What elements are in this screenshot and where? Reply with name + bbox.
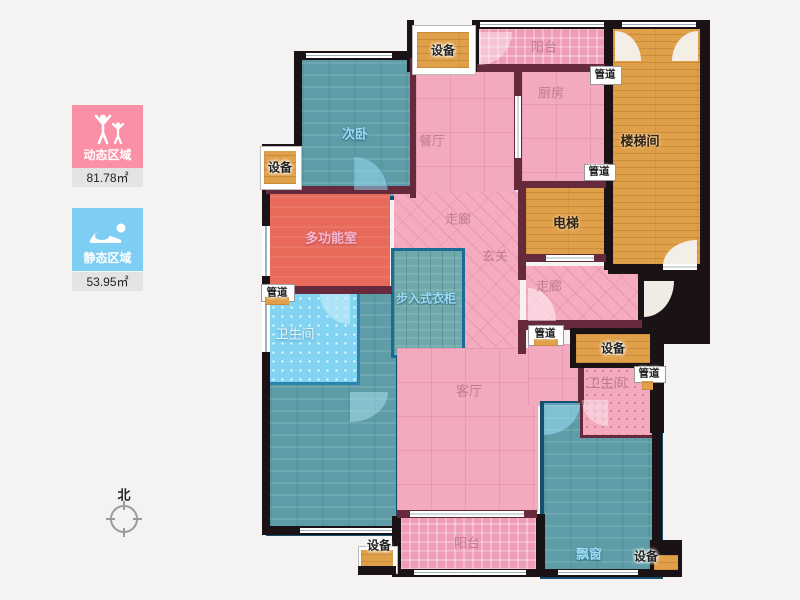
wall	[520, 181, 606, 188]
room-dining	[416, 64, 516, 194]
window	[558, 570, 638, 575]
window	[306, 53, 392, 58]
legend-static-label: 静态区域	[83, 249, 131, 266]
window	[262, 298, 270, 352]
pipe-box	[590, 66, 622, 85]
pipe-box-orange	[534, 339, 558, 346]
compass-icon	[104, 498, 144, 538]
pipe-box	[584, 164, 616, 181]
static-area-icon	[86, 219, 130, 249]
wall	[536, 514, 545, 577]
room-walkin-closet	[391, 248, 465, 358]
legend-dynamic-label: 动态区域	[83, 146, 131, 163]
window	[663, 264, 697, 270]
window	[480, 22, 604, 27]
legend-static-area: 静态区域	[72, 208, 143, 271]
room-multifunction	[268, 194, 390, 288]
window-sliding-door	[410, 511, 524, 517]
window-sliding-door	[515, 96, 521, 158]
room-living	[397, 348, 538, 512]
wall	[604, 28, 613, 270]
room-elevator	[526, 188, 606, 256]
wall	[477, 64, 605, 72]
room-balcony-bottom	[400, 516, 536, 570]
pipe-box-orange	[642, 381, 653, 390]
window-elevator-door	[546, 255, 594, 261]
floorplan-page: { "legend": { "dynamic_label": "动态区域", "…	[0, 0, 800, 600]
window	[414, 570, 526, 575]
equipment-box-right	[576, 334, 650, 363]
dynamic-area-icon	[88, 112, 128, 146]
wall	[518, 181, 526, 280]
wall	[358, 566, 396, 575]
legend-dynamic-value: 81.78㎡	[72, 168, 143, 187]
window	[622, 22, 696, 27]
pipe-box-orange	[265, 297, 289, 305]
equipment-box-top	[417, 32, 469, 68]
room-stairwell	[613, 29, 700, 266]
wall	[700, 20, 710, 277]
wall	[294, 51, 302, 152]
wall	[410, 58, 416, 198]
legend-static-value: 53.95㎡	[72, 272, 143, 291]
equipment-box-bottom-right	[654, 555, 678, 570]
window	[262, 226, 270, 276]
window	[300, 528, 392, 533]
equipment-box-left	[264, 151, 296, 184]
legend-dynamic-area: 动态区域	[72, 105, 143, 168]
